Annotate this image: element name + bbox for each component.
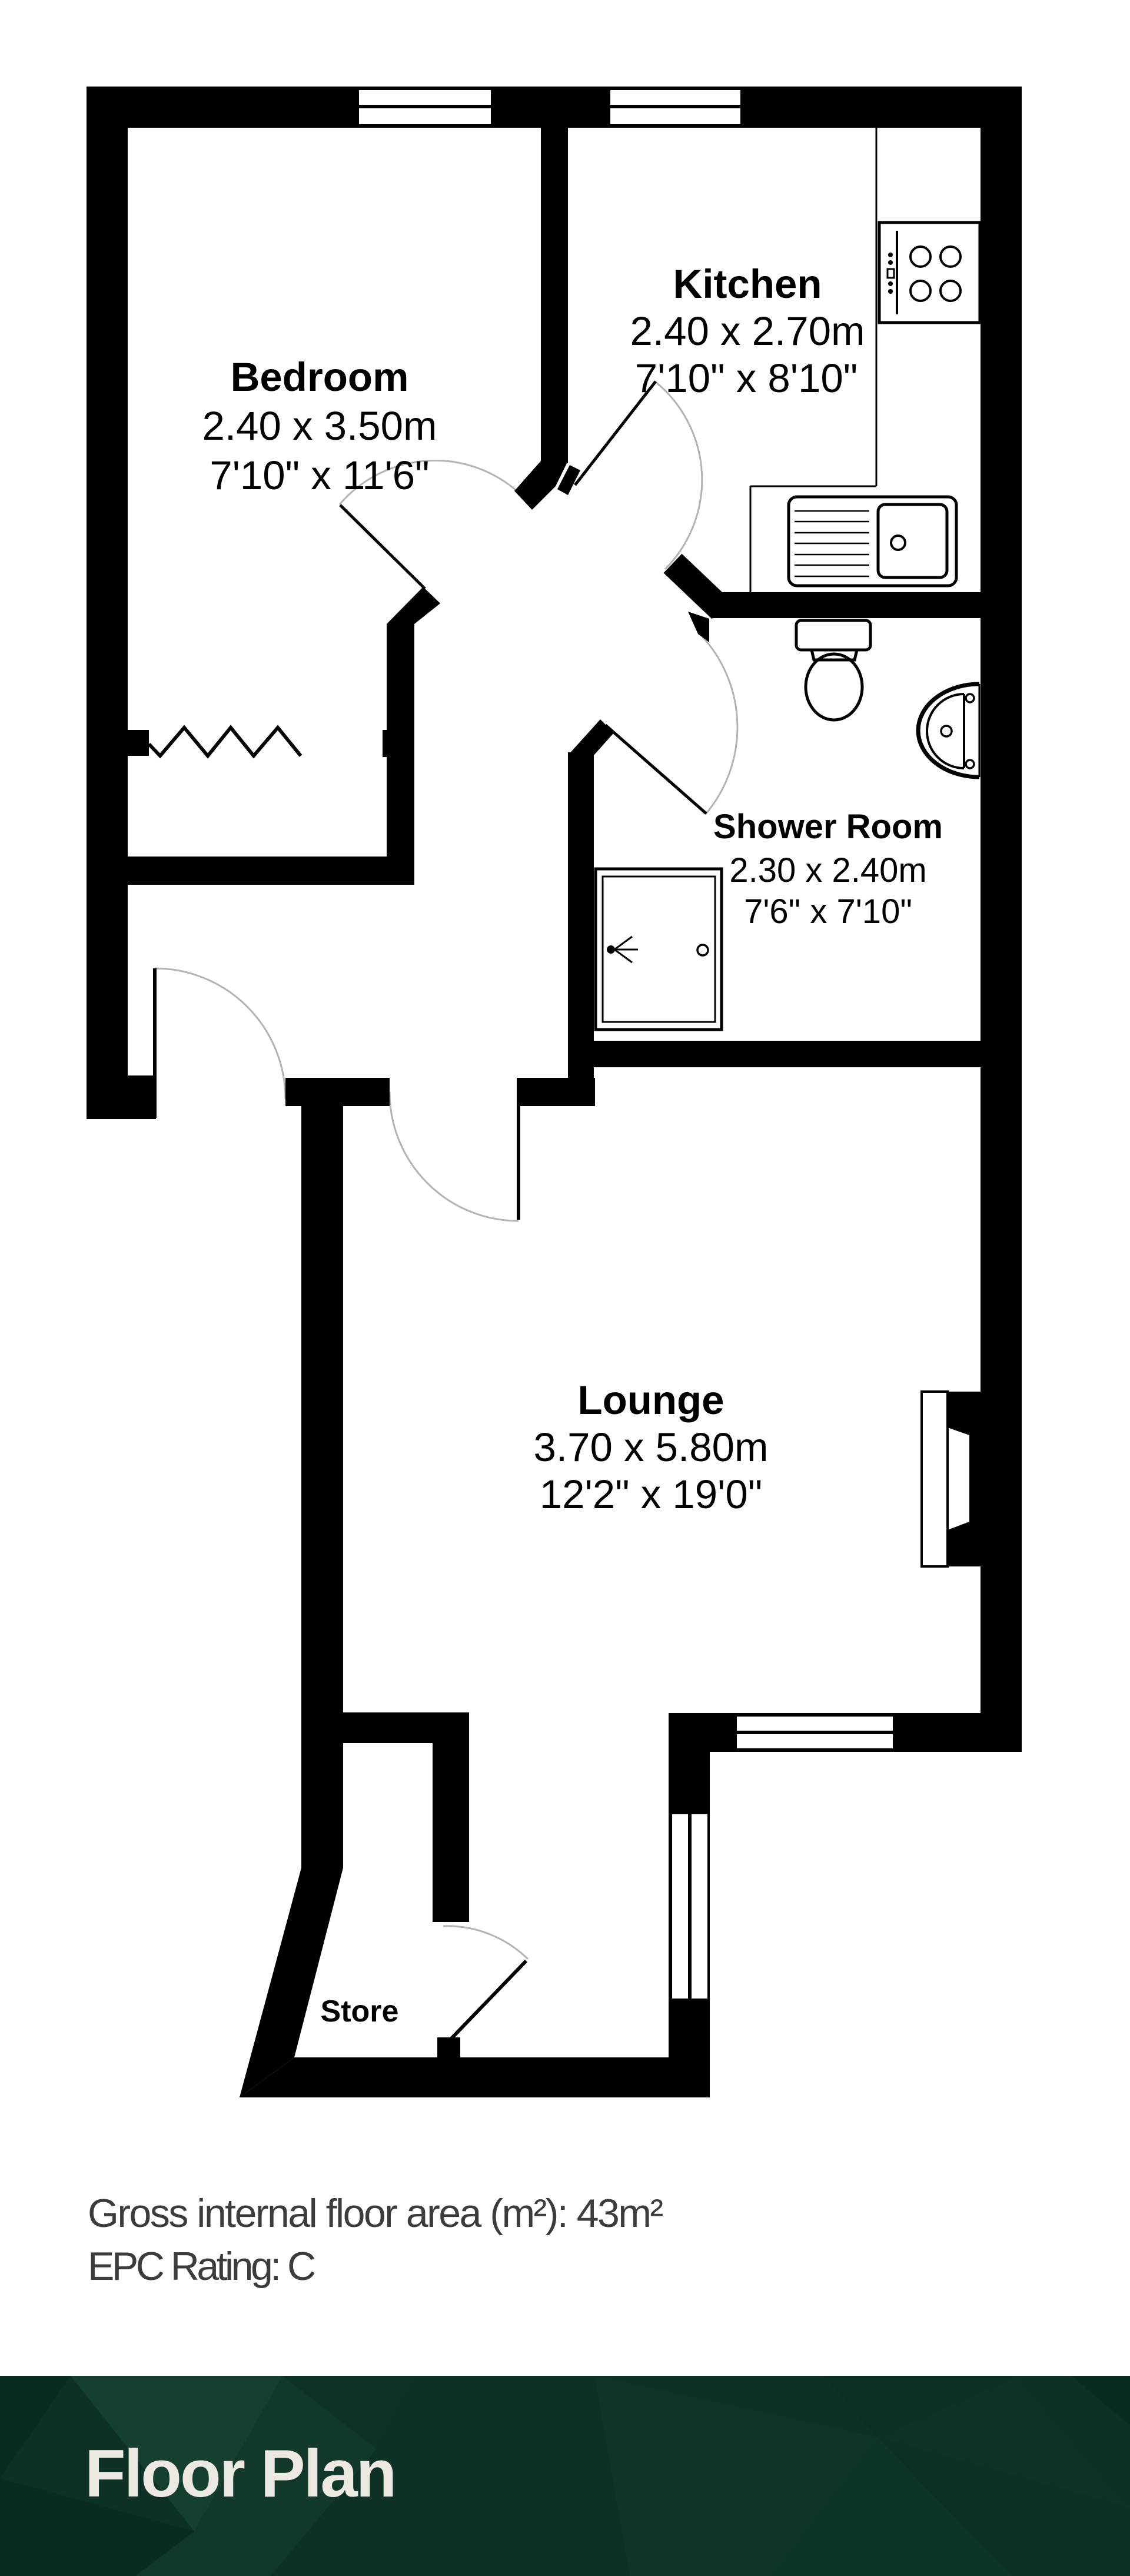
svg-text:EPC Rating: C: EPC Rating: C [88, 2244, 315, 2289]
svg-text:Bedroom: Bedroom [231, 354, 409, 400]
svg-text:7'10" x 8'10": 7'10" x 8'10" [635, 356, 858, 401]
svg-text:2.40 x 3.50m: 2.40 x 3.50m [202, 403, 437, 449]
svg-text:7'6" x 7'10": 7'6" x 7'10" [744, 892, 912, 931]
svg-text:2.30 x 2.40m: 2.30 x 2.40m [729, 851, 926, 889]
svg-text:2.40 x 2.70m: 2.40 x 2.70m [630, 308, 865, 354]
svg-text:12'2" x 19'0": 12'2" x 19'0" [540, 1472, 762, 1517]
svg-text:3.70 x 5.80m: 3.70 x 5.80m [534, 1425, 769, 1470]
svg-text:7'10" x 11'6": 7'10" x 11'6" [210, 453, 429, 498]
svg-text:Gross internal floor area (m²): Gross internal floor area (m²): 43m² [88, 2191, 663, 2236]
svg-text:Lounge: Lounge [577, 1377, 724, 1423]
svg-text:Shower Room: Shower Room [713, 808, 943, 846]
svg-text:Store: Store [321, 1994, 399, 2029]
svg-text:Floor Plan: Floor Plan [85, 2436, 395, 2511]
svg-text:Kitchen: Kitchen [673, 261, 822, 307]
